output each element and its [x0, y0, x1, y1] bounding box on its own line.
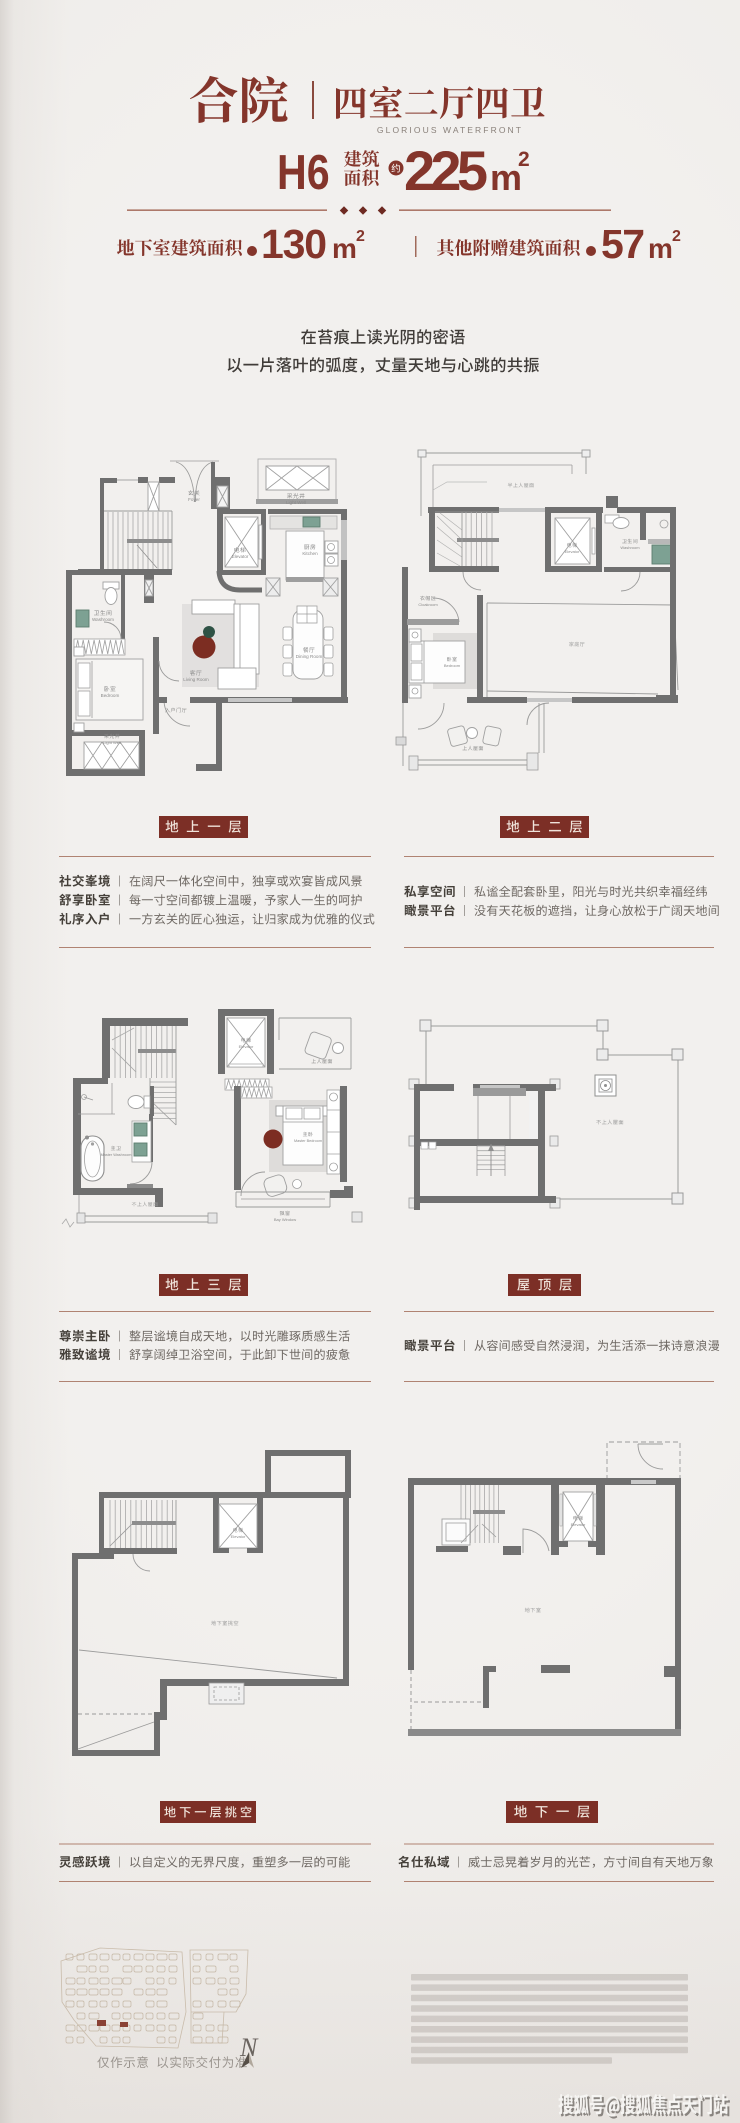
svg-text:Elevator: Elevator	[571, 1522, 586, 1527]
svg-text:Elevator: Elevator	[239, 1044, 254, 1049]
svg-text:Master Washroom: Master Washroom	[101, 1153, 132, 1157]
svg-text:m: m	[648, 233, 673, 264]
svg-text:Bay Window: Bay Window	[274, 1217, 296, 1222]
svg-text:Elevator: Elevator	[231, 1534, 246, 1539]
svg-text:m: m	[332, 233, 357, 264]
svg-text:2: 2	[672, 228, 681, 245]
svg-text:2: 2	[518, 148, 530, 171]
svg-text:Elevator: Elevator	[565, 549, 580, 554]
svg-text:130: 130	[261, 221, 327, 267]
svg-text:Living Room: Living Room	[183, 677, 209, 682]
svg-text:Light Well: Light Well	[103, 740, 121, 745]
svg-text:2: 2	[356, 228, 365, 245]
svg-text:Bedroom: Bedroom	[101, 693, 120, 698]
svg-text:GLORIOUS WATERFRONT: GLORIOUS WATERFRONT	[377, 125, 523, 135]
svg-text:Kitchen: Kitchen	[302, 551, 318, 556]
svg-text:Elevator: Elevator	[232, 554, 249, 559]
svg-text:Bedroom: Bedroom	[444, 663, 461, 668]
svg-text:H6: H6	[277, 145, 330, 200]
svg-text:Master Bedroom: Master Bedroom	[294, 1139, 322, 1143]
svg-text:225: 225	[404, 139, 488, 202]
svg-text:Washroom: Washroom	[92, 617, 114, 622]
svg-text:Dining Room: Dining Room	[296, 654, 323, 659]
svg-text:Foyer: Foyer	[188, 497, 200, 502]
svg-text:Light Well: Light Well	[286, 500, 306, 505]
svg-text:57: 57	[601, 221, 645, 267]
svg-text:Washroom: Washroom	[620, 545, 640, 550]
svg-text:Cloakroom: Cloakroom	[418, 602, 438, 607]
